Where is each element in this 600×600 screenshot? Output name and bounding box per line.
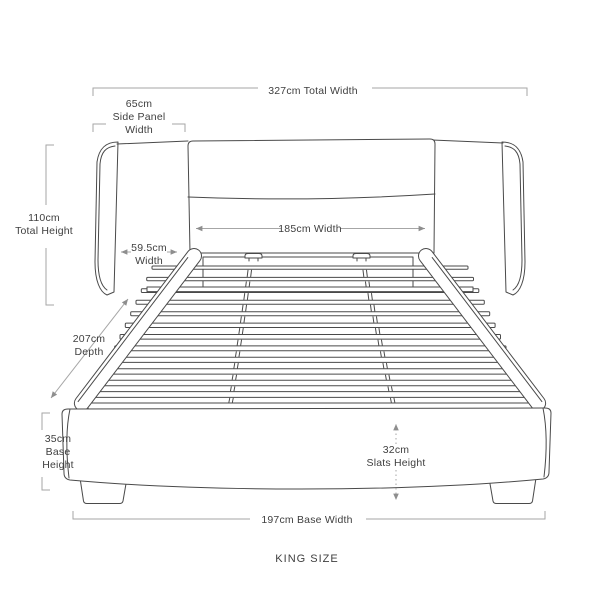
left-side-panel-top-edge	[117, 141, 188, 144]
slat-support-tick	[241, 340, 242, 345]
slat	[131, 312, 490, 316]
right-side-rail	[415, 245, 548, 413]
slat-support-tick	[237, 363, 238, 368]
slat-support-tick	[379, 328, 380, 333]
slat-support-tick	[244, 294, 245, 300]
slat-support-tick	[247, 294, 248, 300]
dim-side-panel-width-label-line2: Side Panel	[113, 111, 166, 124]
slat-support-tick	[232, 398, 233, 402]
slat-support-tick	[374, 305, 375, 311]
slat-support-tick	[244, 317, 245, 323]
center-rail	[147, 287, 473, 292]
dim-depth-label-line1: 207cm	[73, 333, 106, 346]
slat	[147, 277, 474, 280]
diagram-canvas: 327cm Total Width 65cm Side Panel Width …	[0, 0, 600, 600]
slat-support-tick	[387, 363, 388, 368]
size-title: KING SIZE	[275, 553, 338, 566]
dim-base-height-label: 35cm Base Height	[42, 433, 74, 471]
back-panel	[203, 257, 413, 290]
dim-wing-width-label-line2: Width	[131, 255, 167, 268]
slat-support-tick	[232, 375, 233, 379]
slat	[115, 346, 506, 351]
slat-support-tick	[384, 352, 385, 357]
slat	[93, 392, 527, 398]
slat-support-tick	[242, 305, 243, 311]
slat-support-tick	[377, 317, 378, 323]
slat-support-tick	[373, 317, 374, 323]
dim-depth-label: 207cm Depth	[73, 333, 106, 359]
base	[62, 408, 551, 489]
dim-wing-width-label-line1: 59.5cm	[131, 242, 167, 255]
slat-support-tick	[392, 387, 393, 391]
slat-support-tick	[382, 340, 383, 345]
left-side-rail	[71, 245, 204, 413]
slat	[109, 357, 511, 362]
slat	[120, 335, 501, 340]
slat-support-tick	[246, 305, 247, 311]
dim-base-height-label-line3: Height	[42, 459, 74, 472]
dim-side-panel-width-label-line1: 65cm	[113, 98, 166, 111]
slat-support-tick	[234, 363, 235, 368]
dim-side-panel-width-label-line3: Width	[113, 124, 166, 137]
dim-depth-label-line2: Depth	[73, 346, 106, 359]
slat	[99, 380, 523, 386]
dim-total-height-label-line1: 110cm	[15, 212, 73, 225]
slat-support-tick	[236, 375, 237, 379]
slat-support-tick	[371, 305, 372, 311]
dim-total-height-label: 110cm Total Height	[15, 212, 73, 238]
slat	[136, 300, 484, 304]
dim-base-width-label: 197cm Base Width	[261, 514, 352, 527]
dim-total-height-label-line2: Total Height	[15, 225, 73, 238]
slat-support-tick	[237, 340, 238, 345]
right-side-panel-top-edge	[432, 140, 503, 143]
slat-support-tick	[389, 375, 390, 379]
slat-support-tick	[239, 352, 240, 357]
slat-support-tick	[229, 398, 230, 402]
slat-support-tick	[381, 352, 382, 357]
slat-support-tick	[234, 387, 235, 391]
slat-support-tick	[386, 375, 387, 379]
dim-side-panel-width-label: 65cm Side Panel Width	[113, 98, 166, 136]
dim-slats-height-label: 32cm Slats Height	[366, 444, 425, 470]
slat-support-tick	[241, 317, 242, 323]
dim-base-height-label-line1: 35cm	[42, 433, 74, 446]
slat-support-tick	[391, 398, 392, 402]
slat	[104, 369, 517, 374]
slat-support-tick	[236, 352, 237, 357]
slat-support-tick	[242, 328, 243, 333]
dim-slats-height-label-line1: 32cm	[366, 444, 425, 457]
dim-wing-width-label: 59.5cm Width	[131, 242, 167, 268]
bed-frame-drawing	[62, 139, 551, 504]
slat-support-tick	[388, 387, 389, 391]
slat	[125, 323, 495, 327]
dim-mattress-width-label: 185cm Width	[278, 223, 341, 236]
slat	[152, 266, 468, 269]
slat-support-tick	[372, 294, 373, 300]
slat-support-tick	[378, 340, 379, 345]
slat-support-tick	[368, 294, 369, 300]
slat-support-tick	[376, 328, 377, 333]
slat-support-tick	[231, 387, 232, 391]
slat-support-tick	[239, 328, 240, 333]
dim-base-height-label-line2: Base	[42, 446, 74, 459]
slat-support-tick	[394, 398, 395, 402]
slat-support-tick	[383, 363, 384, 368]
dim-total-width-label: 327cm Total Width	[268, 85, 358, 98]
dim-slats-height-label-line2: Slats Height	[366, 457, 425, 470]
